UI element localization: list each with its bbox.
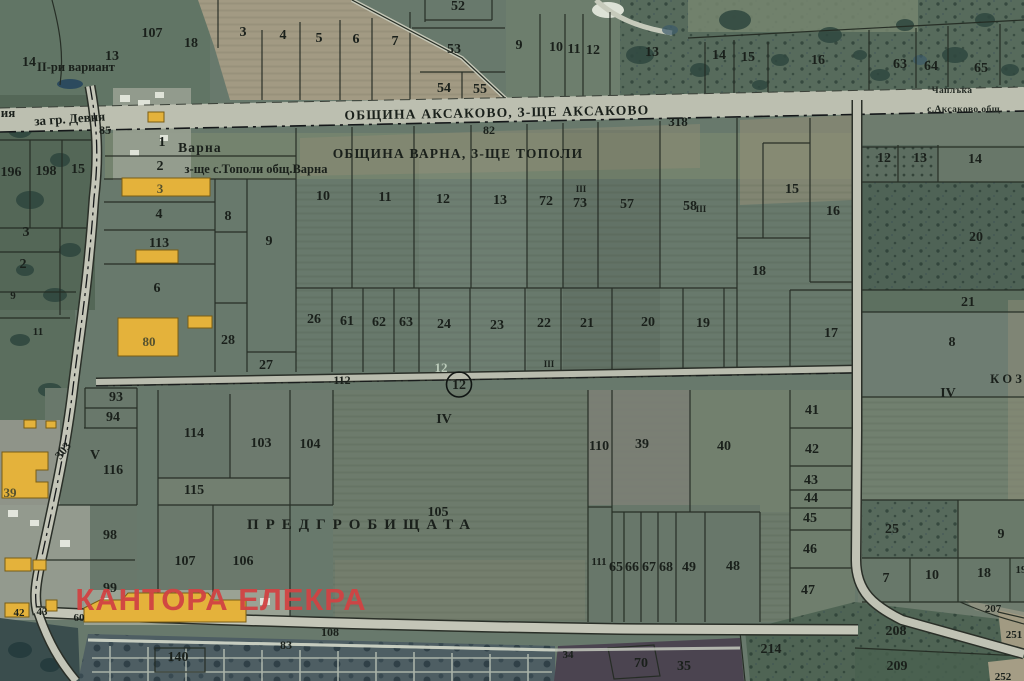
map-label: 15	[741, 50, 755, 65]
map-label: 12	[435, 360, 448, 375]
map-label: 116	[103, 463, 123, 478]
map-label: 1	[159, 135, 166, 150]
map-label: 12	[877, 151, 891, 166]
map-label: Варна	[178, 140, 222, 155]
map-label: 83	[280, 638, 292, 652]
map-label: 18	[752, 264, 766, 279]
map-label: 21	[961, 295, 975, 310]
map-label: 3	[23, 225, 30, 240]
map-label: 39	[4, 485, 18, 500]
watermark-text: КАНТОРА ЕЛЕКРА	[75, 582, 366, 617]
map-label: 14	[968, 152, 982, 167]
map-label: 55	[473, 82, 487, 97]
building	[136, 250, 178, 263]
map-label: 207	[985, 603, 1002, 615]
map-label: К О З	[990, 372, 1022, 386]
map-label: 42	[805, 442, 819, 457]
map-label: 28	[221, 333, 235, 348]
map-label: 21	[580, 316, 594, 331]
map-label: 8	[225, 209, 232, 224]
map-label: 107	[175, 554, 196, 569]
map-label: ия	[1, 105, 16, 120]
map-label: 11	[567, 42, 580, 57]
map-label: 318	[668, 114, 688, 129]
map-label: 17	[824, 326, 838, 341]
map-label: 20	[969, 230, 983, 245]
map-label: 14	[712, 48, 726, 63]
map-label: 2	[20, 257, 27, 272]
map-label: 9	[998, 527, 1005, 542]
survey-point-number: 12	[452, 378, 466, 393]
map-label: 70	[634, 656, 648, 671]
map-label: 196	[1, 165, 22, 180]
map-label: 4	[156, 207, 163, 222]
map-label: 103	[251, 436, 272, 451]
map-label: 10	[549, 40, 563, 55]
map-label: 20	[641, 315, 655, 330]
map-label: 23	[490, 318, 504, 333]
map-label: 10	[925, 568, 939, 583]
map-label: 18	[184, 36, 198, 51]
map-label: 108	[321, 625, 339, 639]
map-label: 208	[886, 624, 907, 639]
map-label: 41	[805, 403, 819, 418]
map-label: 62	[372, 315, 386, 330]
map-label: 6	[353, 32, 360, 47]
map-label: 45	[803, 511, 817, 526]
map-label: 13	[913, 151, 927, 166]
map-label: 39	[635, 437, 649, 452]
map-label: 54	[437, 81, 451, 96]
map-label: 25	[885, 522, 899, 537]
map-label: 73	[573, 196, 587, 211]
map-label: 112	[333, 373, 350, 387]
map-label: 251	[1006, 629, 1023, 641]
map-label: 48	[726, 559, 740, 574]
map-label: 64	[924, 59, 938, 74]
map-label: 9	[516, 38, 523, 53]
map-label: ПРЕДГРОБИЩАТА	[247, 517, 477, 533]
map-label: 110	[589, 439, 609, 454]
map-label: 3	[157, 181, 164, 196]
building	[188, 316, 212, 328]
map-label: III	[576, 184, 587, 194]
map-label: 82	[483, 123, 495, 137]
map-label: 63	[893, 57, 907, 72]
map-label: 16	[826, 204, 840, 219]
map-label: 140	[168, 650, 189, 665]
cadastral-map[interactable]: 1413II-ри вариант10718345526753910111213…	[0, 0, 1024, 681]
map-label: 9	[266, 234, 273, 249]
map-label: 53	[447, 42, 461, 57]
map-label: 49	[682, 560, 696, 575]
map-label: 12	[436, 192, 450, 207]
map-label: 47	[801, 583, 815, 598]
map-label: 12	[586, 43, 600, 58]
map-label: 40	[717, 439, 731, 454]
map-label: 24	[437, 317, 451, 332]
map-label: 65	[974, 61, 988, 76]
map-label: з-ще с.Тополи общ.Варна	[185, 162, 329, 176]
map-label: 67	[642, 560, 656, 575]
map-label: ОБЩИНА ВАРНА, З-ЩЕ ТОПОЛИ	[333, 146, 584, 161]
building	[122, 178, 210, 196]
map-label: III	[696, 204, 707, 214]
map-label: 57	[620, 197, 634, 212]
map-label: 2	[157, 159, 164, 174]
map-label: 7	[392, 34, 399, 49]
map-label: 66	[625, 560, 639, 575]
map-label: 106	[233, 554, 254, 569]
map-label: 10	[316, 189, 330, 204]
map-label: 98	[103, 528, 117, 543]
map-label: 115	[184, 483, 204, 498]
map-label: 27	[259, 358, 273, 373]
map-label: 85	[99, 123, 111, 137]
map-label: 111	[591, 556, 606, 568]
map-label: 9	[10, 290, 16, 302]
map-label: 8	[949, 335, 956, 350]
map-label: 198	[36, 164, 57, 179]
map-label: Чаплъка	[932, 86, 973, 96]
map-label: IV	[940, 386, 956, 401]
map-label: 3	[240, 25, 247, 40]
map-label: 19	[1016, 564, 1024, 576]
map-label: 68	[659, 560, 673, 575]
map-label: 34	[563, 649, 575, 661]
map-label: 65	[609, 560, 623, 575]
map-label: 14	[22, 55, 36, 70]
map-label: 113	[149, 236, 169, 251]
map-label: 11	[378, 190, 391, 205]
map-label: 93	[109, 390, 123, 405]
map-label: 26	[307, 312, 321, 327]
map-label: 209	[887, 659, 908, 674]
map-label: 5	[316, 31, 323, 46]
map-label: 4	[280, 28, 287, 43]
map-label: 214	[761, 642, 782, 657]
map-label: 13	[493, 193, 507, 208]
map-label: 43	[37, 606, 49, 618]
map-label: 43	[804, 473, 818, 488]
map-label: 7	[883, 571, 890, 586]
map-label: 58	[683, 199, 697, 214]
map-label: 80	[143, 334, 156, 349]
map-label: 104	[300, 437, 321, 452]
map-label: II-ри вариант	[37, 60, 115, 74]
map-label: 19	[696, 316, 710, 331]
map-label: 13	[645, 45, 659, 60]
map-label: V	[90, 448, 100, 463]
map-label: 114	[184, 426, 204, 441]
map-label: 18	[977, 566, 991, 581]
map-label: 61	[340, 314, 354, 329]
map-label: 107	[142, 26, 163, 41]
map-label: 252	[995, 671, 1012, 681]
map-label: 46	[803, 542, 817, 557]
map-label: 16	[811, 53, 825, 68]
map-label: 44	[804, 491, 818, 506]
map-label: 63	[399, 315, 413, 330]
map-label: с.Аксаково общ.	[927, 104, 1003, 115]
map-label: 22	[537, 316, 551, 331]
map-label: 94	[106, 410, 120, 425]
map-label: 6	[154, 281, 161, 296]
map-label: III	[544, 359, 555, 369]
map-label: 15	[71, 162, 85, 177]
map-label: 11	[33, 326, 43, 338]
map-label: IV	[436, 412, 452, 427]
map-label: 42	[14, 607, 26, 619]
map-label: 35	[677, 659, 691, 674]
map-label: 72	[539, 194, 553, 209]
map-canvas[interactable]: 1413II-ри вариант10718345526753910111213…	[0, 0, 1024, 681]
map-label: 52	[451, 0, 465, 14]
map-label: 15	[785, 182, 799, 197]
